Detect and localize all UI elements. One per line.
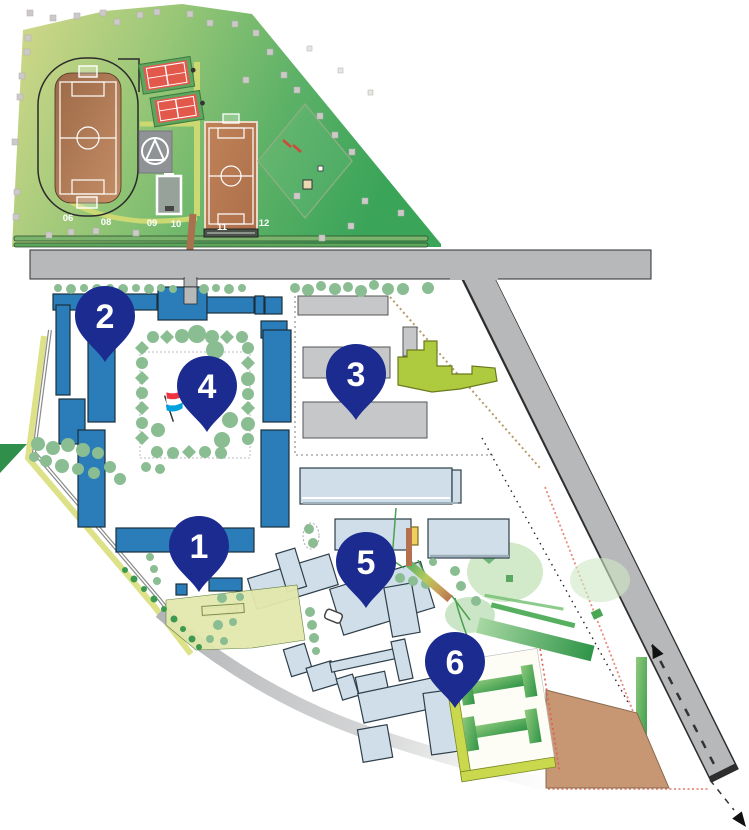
field-label-09: 09 <box>147 218 158 229</box>
pin-number: 5 <box>357 544 376 582</box>
main-road <box>30 250 651 279</box>
sand-field <box>546 690 669 788</box>
exit-dashed-line <box>710 780 734 810</box>
football-pitch-2 <box>204 114 258 237</box>
pin-number: 6 <box>446 644 465 682</box>
multi-sport-court <box>139 131 172 173</box>
football-pitch-1 <box>55 66 121 208</box>
yellow-door <box>411 527 418 545</box>
driveway-notch-into-building <box>184 287 197 304</box>
field-label-10: 10 <box>171 219 182 230</box>
mini-pitch <box>157 173 181 214</box>
field-label-08: 08 <box>101 217 112 228</box>
field-label-12: 12 <box>259 218 270 229</box>
pin-number: 3 <box>347 356 366 394</box>
field-label-06: 06 <box>63 213 74 224</box>
map-pin-2[interactable]: 2 <box>75 286 135 362</box>
campus-map: 060809101112 <box>0 0 749 830</box>
field-label-11: 11 <box>217 222 228 233</box>
sports-park: 060809101112 <box>12 4 441 284</box>
pin-number: 2 <box>96 298 115 336</box>
green-triangle <box>0 444 27 473</box>
exit-arrow <box>732 811 749 830</box>
road-junction-patch <box>450 272 498 280</box>
pin-number: 1 <box>190 528 209 566</box>
pin-number: 4 <box>198 368 217 406</box>
